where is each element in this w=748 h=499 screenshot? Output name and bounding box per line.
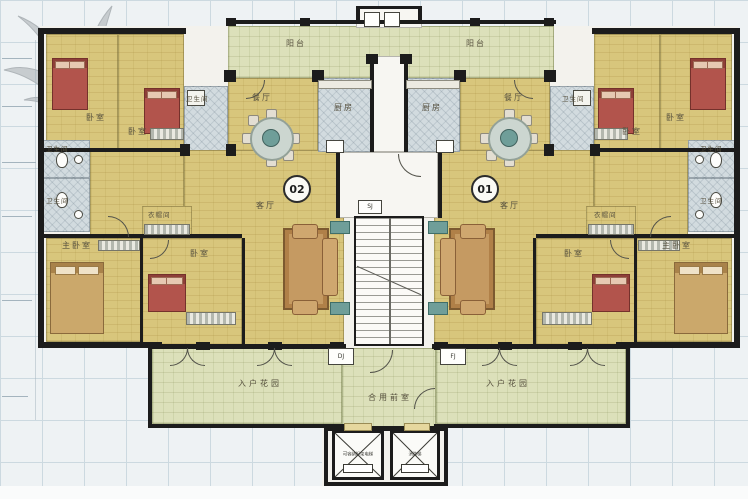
wall-segment: [434, 424, 630, 428]
bed-icon: [52, 58, 88, 110]
dimension-tick: [2, 300, 32, 301]
wall-segment: [616, 342, 740, 348]
stairs: [354, 216, 424, 346]
unit-badge-02: 02: [283, 175, 311, 203]
shaft-box-sj: SJ: [358, 200, 382, 214]
elevator-counterweight: [401, 464, 429, 473]
wall-segment: [242, 238, 245, 346]
column: [470, 18, 480, 26]
wall-segment: [356, 6, 360, 24]
label-bath-edge-lower-left: 卫生间: [46, 198, 69, 205]
wardrobe-icon: [144, 224, 190, 235]
column: [180, 144, 190, 156]
label-bath-edge-lower-right: 卫生间: [700, 198, 723, 205]
sink-icon: [74, 155, 83, 164]
wardrobe-icon: [186, 312, 236, 325]
wall-segment: [634, 238, 637, 342]
label-bedroom-bottom-left: 卧室: [190, 250, 210, 258]
armchair-icon: [292, 224, 318, 239]
unit-badge-01: 01: [471, 175, 499, 203]
bed-icon: [674, 262, 728, 334]
dimension-tick: [2, 216, 32, 217]
label-bedroom-top-outer-right: 卧室: [666, 114, 686, 122]
column: [590, 144, 600, 156]
label-cloak-right: 衣帽间: [594, 212, 617, 219]
column: [300, 18, 310, 26]
wall-segment: [40, 28, 186, 34]
wardrobe-icon: [588, 224, 634, 235]
stove-icon: [436, 140, 454, 153]
tv-stand-icon: [330, 302, 350, 315]
dimension-line: [35, 40, 36, 420]
wardrobe-icon: [542, 312, 592, 325]
tv-stand-icon: [428, 302, 448, 315]
label-master-left: 主卧室: [62, 242, 92, 250]
label-bedroom-top-inner-left: 卧室: [128, 128, 148, 136]
wall-segment: [418, 6, 422, 24]
label-shared-vestibule: 合用前室: [368, 394, 412, 402]
column: [366, 54, 378, 64]
label-dining-left: 餐厅: [252, 94, 272, 102]
page-margin: [0, 486, 748, 499]
duct-dj-label: DJ: [338, 354, 344, 360]
wall-segment: [336, 152, 340, 218]
wardrobe-icon: [150, 128, 184, 140]
wall-segment: [734, 28, 740, 348]
elevator-right-label: 消防梯: [399, 450, 431, 456]
wall-segment: [592, 28, 738, 34]
label-dining-right: 餐厅: [504, 94, 524, 102]
dimension-tick: [2, 58, 32, 59]
label-garden-left: 入户花园: [238, 380, 282, 388]
duct-fj-label: FJ: [450, 354, 455, 360]
column: [226, 18, 236, 26]
label-living-right: 客厅: [500, 202, 520, 210]
shaft-sj-label: SJ: [367, 204, 373, 210]
wall-segment: [38, 342, 162, 348]
kitchen-counter: [318, 80, 372, 89]
duct-box-dj: DJ: [328, 348, 354, 365]
lobby-stub: [344, 423, 372, 431]
label-balcony-right: 阳台: [466, 40, 486, 48]
wall-segment: [38, 28, 44, 348]
bed-icon: [592, 274, 630, 312]
label-kitchen-right: 厨房: [422, 104, 442, 112]
column: [224, 70, 236, 82]
wall-segment: [533, 238, 536, 346]
column: [544, 70, 556, 82]
bed-icon: [148, 274, 186, 312]
sink-icon: [695, 155, 704, 164]
label-cloak-left: 衣帽间: [148, 212, 171, 219]
column: [226, 144, 236, 156]
label-garden-right: 入户花园: [486, 380, 530, 388]
wall-segment: [444, 426, 448, 484]
tv-stand-icon: [428, 221, 448, 234]
sink-icon: [74, 210, 83, 219]
wall-segment: [148, 424, 344, 428]
wall-segment: [148, 348, 152, 428]
elevator-lobby: [338, 152, 438, 218]
armchair-icon: [292, 300, 318, 315]
wall-segment: [438, 152, 442, 218]
elevator-shaft-right: 消防梯: [390, 430, 440, 480]
wall-segment: [324, 426, 328, 484]
sofa-icon: [322, 238, 338, 296]
stair-break-line: [357, 266, 421, 295]
vent-box: [384, 12, 400, 27]
dining-table-icon: [242, 109, 298, 165]
wardrobe-icon: [98, 240, 140, 251]
toilet-icon: [56, 152, 68, 168]
dimension-tick: [2, 162, 36, 163]
duct-box-fj: FJ: [440, 348, 466, 365]
tv-stand-icon: [330, 221, 350, 234]
wall-segment: [370, 56, 374, 152]
stove-icon: [326, 140, 344, 153]
unit-02-number: 02: [289, 183, 304, 196]
vent-box: [364, 12, 380, 27]
core-shaft: [372, 56, 406, 152]
dimension-tick: [2, 106, 32, 107]
armchair-icon: [460, 300, 486, 315]
sink-icon: [695, 210, 704, 219]
kitchen-counter: [406, 80, 460, 89]
wall-segment: [626, 348, 630, 428]
column: [544, 144, 554, 156]
dimension-tick: [2, 396, 28, 397]
floor-plan-canvas: 可容纳担架电梯 消防梯 DJ FJ SJ 阳台 阳台 餐厅 餐厅 厨房 厨房 客…: [0, 0, 748, 499]
lobby-stub: [404, 423, 430, 431]
label-bedroom-top-inner-right: 卧室: [622, 128, 642, 136]
label-bath-edge-upper-left: 卫生间: [46, 146, 69, 153]
wall-segment: [140, 238, 143, 342]
elevator-shaft-left: 可容纳担架电梯: [332, 430, 384, 480]
label-bedroom-top-outer-left: 卧室: [86, 114, 106, 122]
label-balcony-left: 阳台: [286, 40, 306, 48]
bed-icon: [690, 58, 726, 110]
label-bath-inner-right: 卫生间: [562, 96, 585, 103]
dining-table-icon: [480, 109, 536, 165]
sofa-icon: [440, 238, 456, 296]
elevator-counterweight: [343, 464, 372, 473]
wall-segment: [356, 6, 422, 9]
label-bath-inner-left: 卫生间: [186, 96, 209, 103]
armchair-icon: [460, 224, 486, 239]
label-living-left: 客厅: [256, 202, 276, 210]
toilet-icon: [710, 152, 722, 168]
label-master-right: 主卧室: [662, 242, 692, 250]
label-bedroom-bottom-right: 卧室: [564, 250, 584, 258]
column: [400, 54, 412, 64]
column: [544, 18, 554, 26]
bed-icon: [50, 262, 104, 334]
wall-segment: [404, 56, 408, 152]
label-bath-edge-upper-right: 卫生间: [700, 146, 723, 153]
elevator-left-label: 可容纳担架电梯: [341, 450, 374, 456]
wall-segment: [44, 234, 242, 238]
unit-01-number: 01: [477, 183, 492, 196]
label-kitchen-left: 厨房: [334, 104, 354, 112]
